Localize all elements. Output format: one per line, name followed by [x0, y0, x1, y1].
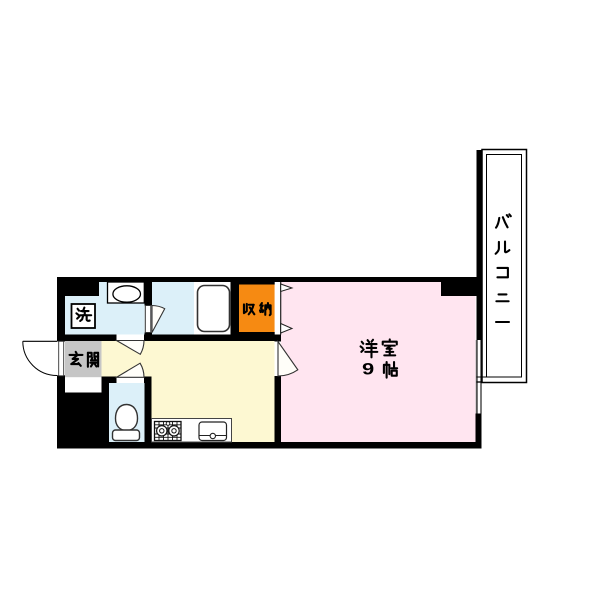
svg-text:9: 9 [362, 360, 374, 379]
